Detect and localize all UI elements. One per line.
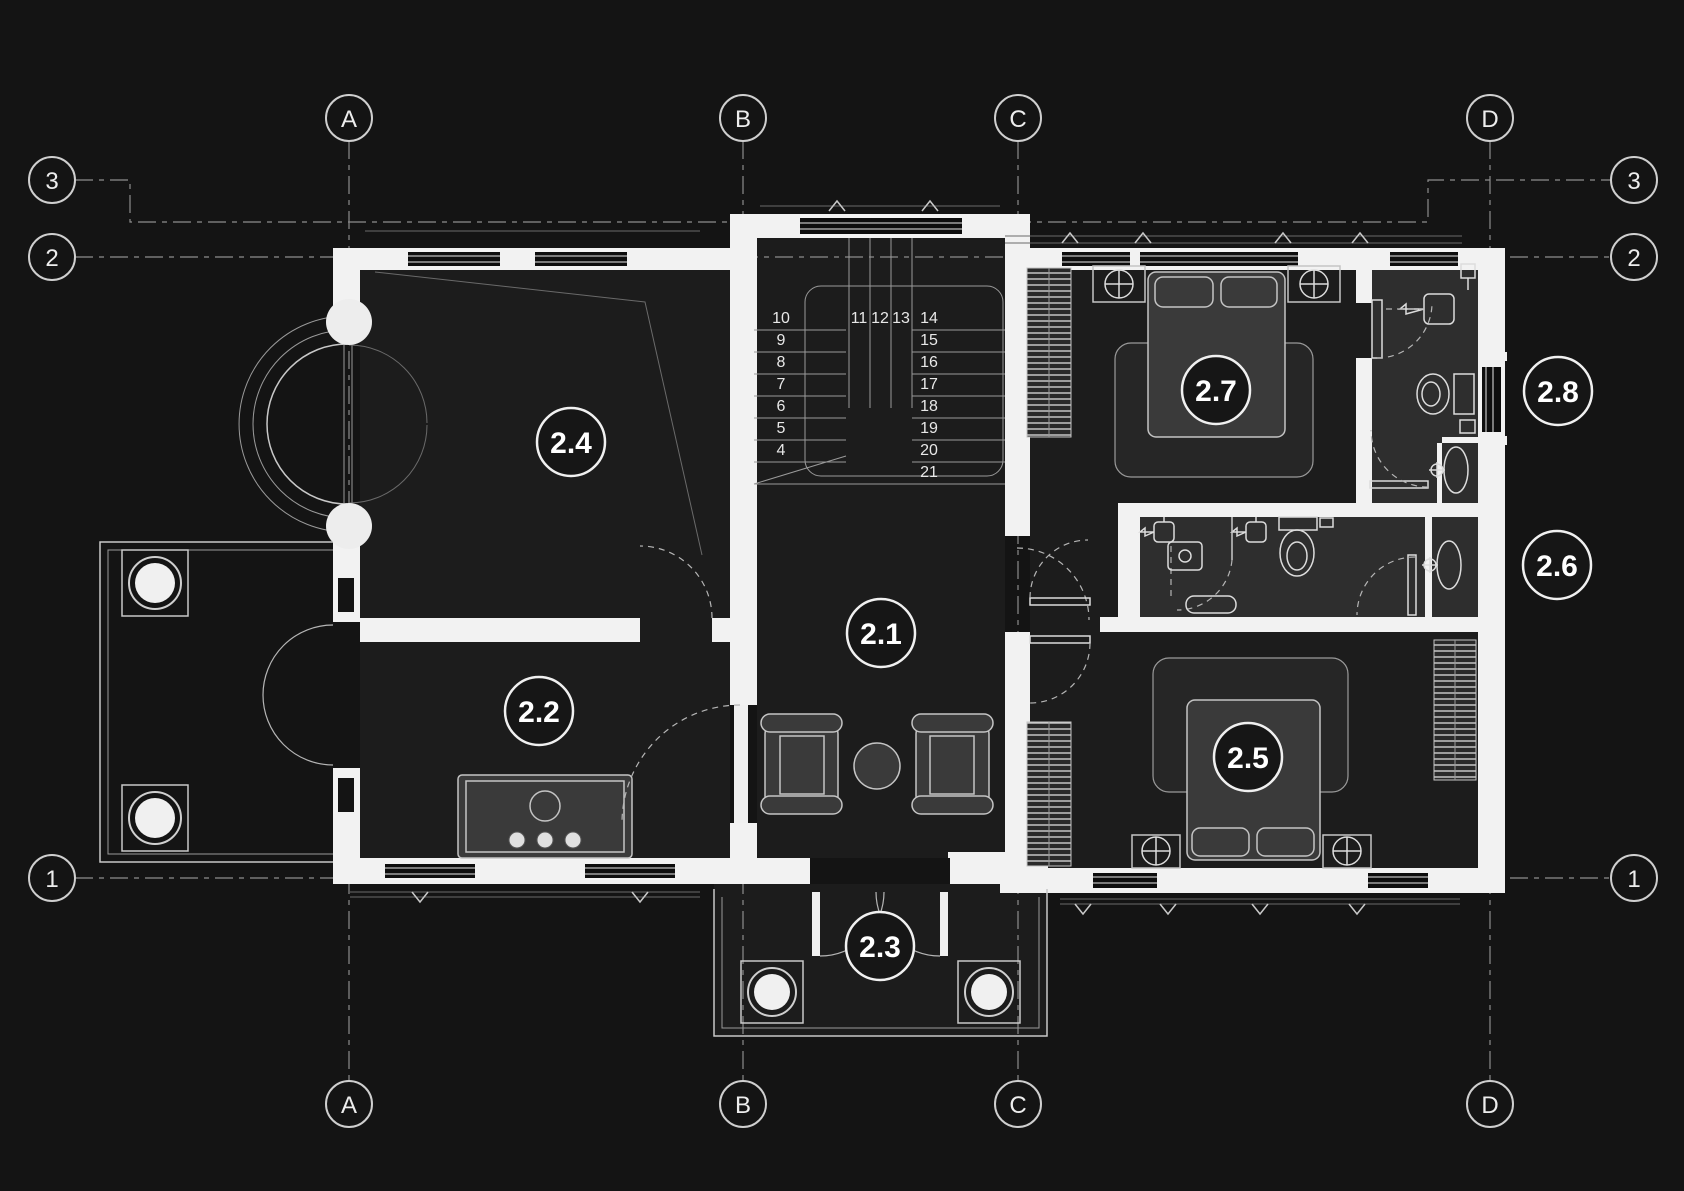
stair-step-number: 5 xyxy=(777,420,786,437)
porch-door-leaf xyxy=(812,892,820,956)
grid-marker-2-right: 2 xyxy=(1611,234,1657,280)
window xyxy=(1482,367,1501,432)
stair-step-number: 8 xyxy=(777,354,786,371)
grid-marker-1-left: 1 xyxy=(29,855,75,901)
window xyxy=(535,252,627,266)
svg-text:B: B xyxy=(735,1092,751,1119)
room-label-2-2: 2.2 xyxy=(505,677,573,745)
room-label-2-1: 2.1 xyxy=(847,599,915,667)
window xyxy=(1062,252,1130,266)
pilaster-notch xyxy=(338,578,354,612)
stair-step-number: 6 xyxy=(777,398,786,415)
stair-step-number: 7 xyxy=(777,376,786,393)
grid-marker-a-bottom: A xyxy=(326,1081,372,1127)
grid-marker-1-right: 1 xyxy=(1611,855,1657,901)
stair-step-number: 13 xyxy=(892,310,910,327)
terrace-column xyxy=(122,785,188,851)
room-label-2-4: 2.4 xyxy=(537,408,605,476)
window xyxy=(1368,873,1428,888)
room-label-2-3: 2.3 xyxy=(846,912,914,980)
window xyxy=(1140,252,1298,266)
pillow xyxy=(1155,277,1213,307)
room-label-2-8: 2.8 xyxy=(1524,357,1592,425)
stair-step-number: 14 xyxy=(920,310,938,327)
stair-step-number: 10 xyxy=(772,310,790,327)
floor-plan-page: 10 9 8 7 6 5 4 11 12 13 14 15 16 17 18 1… xyxy=(0,0,1684,1191)
left-terrace xyxy=(100,542,354,862)
svg-text:2.7: 2.7 xyxy=(1195,375,1237,408)
room-label-2-5: 2.5 xyxy=(1214,723,1282,791)
half-column xyxy=(326,299,372,345)
stair-step-number: 18 xyxy=(920,398,938,415)
window xyxy=(408,252,500,266)
svg-text:A: A xyxy=(341,1092,357,1119)
svg-text:C: C xyxy=(1009,1092,1026,1119)
window xyxy=(1093,873,1157,888)
room-label-2-6: 2.6 xyxy=(1523,531,1591,599)
svg-text:1: 1 xyxy=(45,866,58,893)
floor-plan-drawing: 10 9 8 7 6 5 4 11 12 13 14 15 16 17 18 1… xyxy=(0,0,1684,1191)
svg-text:D: D xyxy=(1481,1092,1498,1119)
svg-text:D: D xyxy=(1481,106,1498,133)
stair-step-number: 16 xyxy=(920,354,938,371)
svg-text:2.8: 2.8 xyxy=(1537,376,1579,409)
grid-marker-b-bottom: B xyxy=(720,1081,766,1127)
grid-marker-2-left: 2 xyxy=(29,234,75,280)
svg-text:2: 2 xyxy=(1627,245,1640,272)
stair-step-number: 15 xyxy=(920,332,938,349)
round-table xyxy=(854,743,900,789)
svg-text:1: 1 xyxy=(1627,866,1640,893)
pillow xyxy=(1192,828,1249,856)
terrace-door-arc xyxy=(263,625,333,695)
grid-marker-c-bottom: C xyxy=(995,1081,1041,1127)
grid-marker-b-top: B xyxy=(720,95,766,141)
door-leaf xyxy=(734,705,748,823)
svg-text:3: 3 xyxy=(45,168,58,195)
svg-text:2.4: 2.4 xyxy=(550,427,592,460)
stair-step-number: 17 xyxy=(920,376,938,393)
porch-door-leaf xyxy=(940,892,948,956)
grid-marker-c-top: C xyxy=(995,95,1041,141)
stair-step-number: 21 xyxy=(920,464,938,481)
stair-step-number: 19 xyxy=(920,420,938,437)
grid-marker-d-bottom: D xyxy=(1467,1081,1513,1127)
svg-text:A: A xyxy=(341,106,357,133)
terrace-column xyxy=(122,550,188,616)
terrace-door-arc xyxy=(263,695,333,765)
svg-text:2.1: 2.1 xyxy=(860,618,902,651)
grid-marker-3-right: 3 xyxy=(1611,157,1657,203)
stair-step-number: 12 xyxy=(871,310,889,327)
window xyxy=(800,218,962,234)
svg-text:2.2: 2.2 xyxy=(518,696,560,729)
dresser xyxy=(458,775,632,858)
grid-marker-d-top: D xyxy=(1467,95,1513,141)
stair-step-number: 11 xyxy=(851,310,868,327)
svg-text:2.3: 2.3 xyxy=(859,931,901,964)
pilaster-notch xyxy=(338,778,354,812)
pillow xyxy=(1257,828,1314,856)
svg-text:2.5: 2.5 xyxy=(1227,742,1269,775)
svg-text:2: 2 xyxy=(45,245,58,272)
armchair xyxy=(912,714,993,814)
window xyxy=(385,864,475,878)
svg-text:C: C xyxy=(1009,106,1026,133)
stair-step-number: 9 xyxy=(777,332,786,349)
armchair xyxy=(761,714,842,814)
svg-text:2.6: 2.6 xyxy=(1536,550,1578,583)
room-label-2-7: 2.7 xyxy=(1182,356,1250,424)
grid-marker-a-top: A xyxy=(326,95,372,141)
window xyxy=(585,864,675,878)
terrace-door-opening xyxy=(333,622,360,768)
grid-marker-3-left: 3 xyxy=(29,157,75,203)
svg-text:3: 3 xyxy=(1627,168,1640,195)
window xyxy=(1390,252,1458,266)
pillow xyxy=(1221,277,1277,307)
stair-step-number: 20 xyxy=(920,442,938,459)
svg-text:B: B xyxy=(735,106,751,133)
porch-door-opening xyxy=(810,858,950,884)
stair-step-number: 4 xyxy=(777,442,786,459)
